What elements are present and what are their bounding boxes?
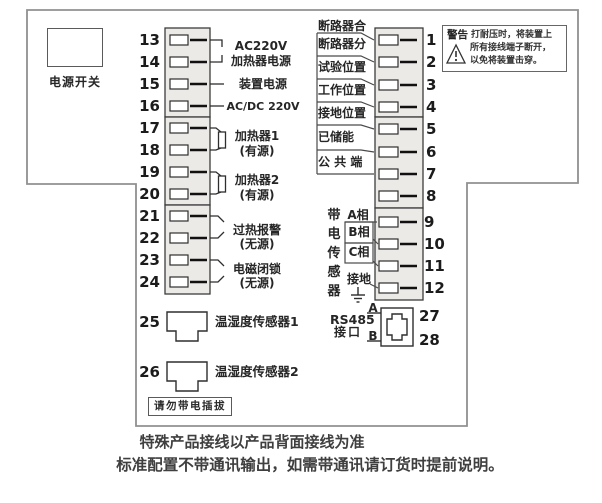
label-heater2-1: 加热器2 bbox=[230, 173, 284, 188]
terminal-number: 17 bbox=[132, 119, 160, 137]
label-magnetic-lock-1: 电磁闭锁 bbox=[230, 262, 284, 277]
terminal-number: 4 bbox=[426, 98, 452, 116]
resistor-icon bbox=[219, 176, 226, 192]
label-heater-power-2: 加热器电源 bbox=[226, 54, 296, 69]
label-breaker-open: 断路器分 bbox=[318, 36, 370, 52]
footer-note-2: 标准配置不带通讯输出，如需带通讯请订货时提前说明。 bbox=[40, 456, 580, 474]
wiring-diagram: 电源开关 13 14 15 16 17 18 19 20 21 22 23 24… bbox=[0, 0, 602, 503]
warning-line-1: 打耐压时，将装置上 bbox=[471, 30, 552, 41]
terminal-number: 20 bbox=[132, 185, 160, 203]
label-device-power-1: 装置电源 bbox=[224, 77, 302, 92]
terminal-number: 22 bbox=[132, 229, 160, 247]
terminal-number: 6 bbox=[426, 143, 452, 161]
label-phase-a: A相 bbox=[344, 208, 372, 223]
label-heater-power-1: AC220V bbox=[226, 39, 296, 54]
warning-title: 警告 bbox=[447, 29, 468, 41]
label-device-power-2: AC/DC 220V bbox=[224, 99, 302, 114]
warning-line-2: 所有接线端子断开， bbox=[470, 43, 551, 54]
status-label-box bbox=[317, 33, 374, 174]
terminal-number: 9 bbox=[424, 213, 452, 231]
label-breaker-closed: 断路器合 bbox=[318, 18, 370, 34]
label-overheat-alarm-1: 过热报警 bbox=[230, 223, 284, 238]
warning-box: 警告 打耐压时，将装置上 所有接线端子断开， 以免将装置击穿。 bbox=[442, 25, 567, 72]
terminal-number: 12 bbox=[424, 279, 452, 297]
no-hotplug-box: 请勿带电插拔 bbox=[148, 397, 232, 416]
terminal-number: 11 bbox=[424, 257, 452, 275]
label-humidity-sensor-1: 温湿度传感器1 bbox=[215, 314, 311, 330]
terminal-number: 13 bbox=[132, 31, 160, 49]
terminal-number: 18 bbox=[132, 141, 160, 159]
rs485-a-label: A bbox=[366, 301, 380, 316]
terminal-number: 28 bbox=[419, 331, 447, 349]
terminal-number: 25 bbox=[132, 313, 160, 331]
label-phase-ground: 接地 bbox=[345, 272, 373, 287]
label-heater1-1: 加热器1 bbox=[230, 129, 284, 144]
footer-note-1: 特殊产品接线以产品背面接线为准 bbox=[62, 433, 442, 451]
terminal-number: 15 bbox=[132, 75, 160, 93]
label-work-position: 工作位置 bbox=[318, 82, 370, 98]
resistor-icon bbox=[219, 132, 226, 148]
rs485-port-label: 接口 bbox=[330, 325, 366, 340]
label-heater2-2: (有源) bbox=[230, 188, 284, 203]
terminal-number: 23 bbox=[132, 251, 160, 269]
rs485-b-label: B bbox=[366, 329, 380, 344]
warning-line-3: 以免将装置击穿。 bbox=[470, 56, 542, 67]
power-switch-label: 电源开关 bbox=[40, 75, 110, 90]
no-hotplug-label: 请勿带电插拔 bbox=[149, 398, 231, 414]
terminal-number: 16 bbox=[132, 97, 160, 115]
label-heater1-2: (有源) bbox=[230, 144, 284, 159]
ground-icon bbox=[351, 287, 365, 302]
right-terminal-strip bbox=[375, 28, 423, 300]
label-overheat-alarm-2: (无源) bbox=[230, 237, 284, 252]
terminal-number: 8 bbox=[426, 187, 452, 205]
terminal-number: 27 bbox=[419, 307, 447, 325]
label-test-position: 试验位置 bbox=[318, 59, 370, 75]
label-energy-stored: 已储能 bbox=[318, 129, 370, 145]
terminal-number: 19 bbox=[132, 163, 160, 181]
rj45-jack-icon bbox=[167, 362, 207, 391]
terminal-number: 3 bbox=[426, 76, 452, 94]
left-terminal-strip bbox=[165, 28, 210, 294]
label-ground-position: 接地位置 bbox=[318, 105, 370, 121]
terminal-number: 5 bbox=[426, 120, 452, 138]
label-phase-c: C相 bbox=[345, 245, 373, 260]
terminal-number: 10 bbox=[424, 235, 452, 253]
warning-triangle-icon bbox=[445, 43, 469, 67]
live-sensor-title: 带电传感器 bbox=[326, 206, 342, 301]
terminal-number: 21 bbox=[132, 207, 160, 225]
label-phase-b: B相 bbox=[345, 225, 373, 240]
label-magnetic-lock-2: (无源) bbox=[230, 276, 284, 291]
label-common-terminal: 公 共 端 bbox=[318, 154, 370, 170]
terminal-number: 24 bbox=[132, 273, 160, 291]
power-switch-box bbox=[47, 28, 103, 67]
label-humidity-sensor-2: 温湿度传感器2 bbox=[215, 364, 311, 380]
terminal-number: 26 bbox=[132, 363, 160, 381]
rj45-jack-icon bbox=[167, 312, 207, 341]
terminal-number: 14 bbox=[132, 53, 160, 71]
terminal-number: 7 bbox=[426, 165, 452, 183]
